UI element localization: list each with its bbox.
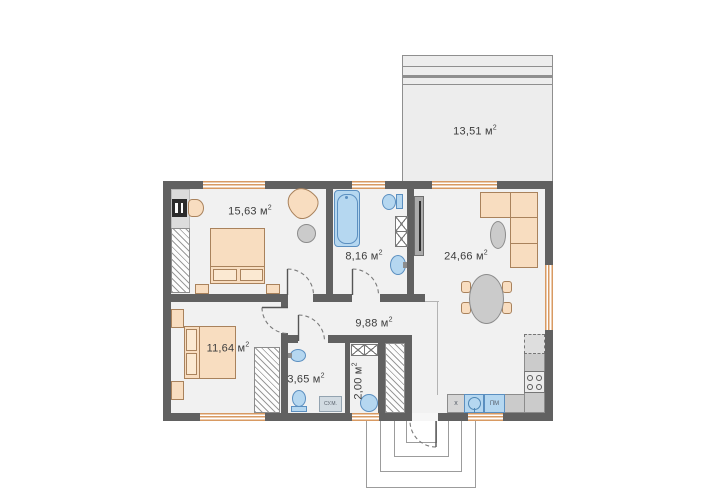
pillow (186, 353, 197, 375)
wall-closet-corridor (405, 343, 412, 413)
pillow (240, 269, 263, 281)
fridge (524, 334, 545, 354)
wardrobe-bedroom-top (171, 228, 190, 293)
entrance-step (406, 421, 437, 443)
bed-blanket-line (199, 327, 200, 378)
toilet-tank (396, 194, 403, 209)
terrace-edge-line (402, 84, 553, 85)
washing-machine-label: СУ.М. (324, 401, 337, 407)
room-label-vestibule: 2,00 м2 (352, 362, 365, 399)
pillow (186, 329, 197, 351)
tv-panel (414, 196, 424, 256)
nightstand (171, 381, 184, 400)
wall-hallway-bottom (328, 335, 412, 343)
desk-icon (172, 199, 187, 217)
burner (527, 384, 533, 390)
nightstand (171, 309, 184, 328)
room-label-terrace: 13,51 м2 (453, 125, 497, 138)
window-bedroom-bottom (200, 413, 265, 421)
pouf-table (297, 224, 316, 243)
sink-tap (403, 262, 407, 268)
room-boundary-line (437, 301, 438, 395)
terrace-edge-line (402, 75, 553, 78)
sink (290, 349, 306, 362)
toilet-tank (291, 406, 307, 412)
nightstand (195, 284, 209, 294)
kitchen-unit-x: x (447, 394, 465, 413)
bathroom-cabinet (395, 216, 408, 232)
window-bedroom-top (203, 181, 265, 189)
wall-bathroom-vestibule (345, 343, 350, 413)
burner (536, 375, 542, 381)
bathtub (334, 190, 360, 247)
window-kitchen (468, 413, 503, 421)
nightstand (266, 284, 280, 294)
room-label-living-kitchen: 24,66 м2 (444, 250, 488, 263)
window-living-terrace (432, 181, 497, 189)
kitchen-sink-unit (464, 394, 484, 413)
sofa-cushion-line (511, 217, 537, 218)
sofa-corner-right (510, 192, 538, 268)
room-label-hallway: 9,88 м2 (355, 317, 392, 330)
wall-bedroom2-right (281, 294, 288, 307)
dining-chair (502, 281, 512, 293)
sink-tap (288, 353, 292, 358)
coffee-table (490, 221, 506, 249)
sofa-cushion-line (511, 243, 537, 244)
room-label-bedroom-bottom: 11,64 м2 (207, 342, 250, 355)
entrance-doorway (412, 413, 438, 421)
room-label-bathroom-main: 8,16 м2 (345, 250, 382, 263)
vestibule-shelf (351, 344, 365, 356)
dishwasher-label: ПМ (490, 401, 499, 407)
wall-hallway-top (313, 294, 352, 302)
dishwasher: ПМ (484, 394, 505, 413)
desk-chair (188, 199, 204, 217)
kitchen-unit-label: x (454, 400, 458, 407)
room-label-bedroom-top: 15,63 м2 (228, 205, 272, 218)
window-living-right (545, 265, 553, 330)
vestibule-shelf (364, 344, 378, 356)
toilet (292, 390, 306, 407)
pillow (213, 269, 237, 281)
window-bathroom-main (352, 181, 385, 189)
wardrobe-bedroom-bottom (254, 347, 280, 413)
terrace-edge-line (402, 66, 553, 67)
bed-blanket-line (211, 266, 264, 267)
bathroom-cabinet (395, 231, 408, 247)
wall-hallway-top (163, 294, 287, 302)
wall-bedroom-bathroom (326, 181, 333, 294)
sofa-corner-top (480, 192, 512, 218)
wall-vestibule-closet (378, 343, 385, 413)
burner (527, 375, 533, 381)
toilet (382, 194, 396, 210)
wall-hallway-bottom (281, 335, 298, 343)
dining-table (469, 274, 504, 324)
room-label-bathroom-small: 3,65 м2 (287, 373, 324, 386)
wardrobe-entrance (385, 343, 405, 413)
wall-hallway-top (380, 294, 425, 302)
floor-plan: x ПМ СУ.М. 13,51 м2 15,63 м2 8,16 м2 (0, 0, 703, 502)
wall-bathroom-living (407, 181, 414, 302)
washing-machine: СУ.М. (319, 396, 342, 412)
burner (536, 384, 542, 390)
stove (524, 371, 545, 393)
window-vestibule (352, 413, 379, 421)
